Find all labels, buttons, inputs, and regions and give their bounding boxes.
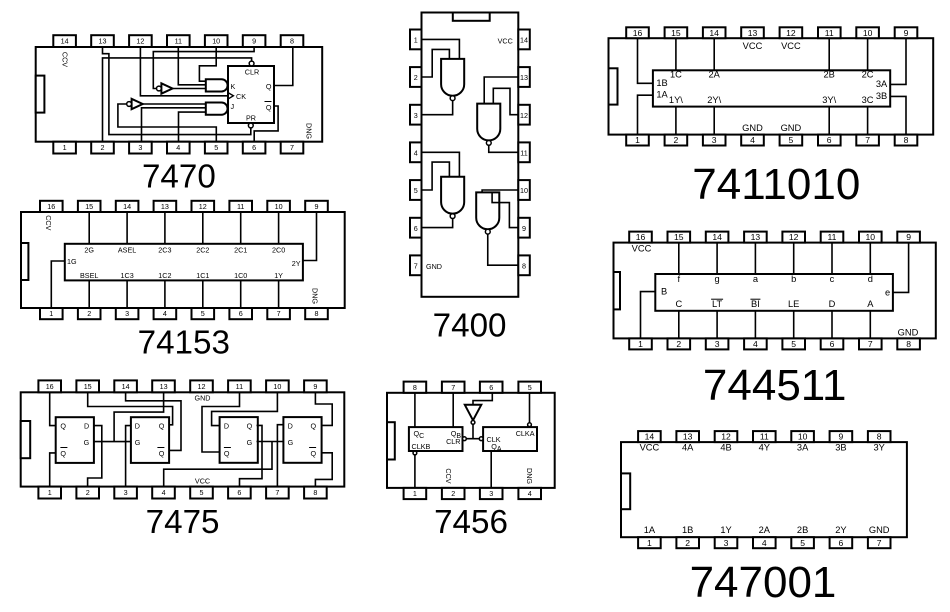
svg-text:8: 8 — [904, 135, 909, 145]
svg-text:11: 11 — [828, 232, 837, 242]
svg-text:7: 7 — [877, 538, 882, 548]
svg-text:8: 8 — [313, 488, 317, 497]
svg-text:VCC: VCC — [195, 477, 210, 486]
svg-text:CCV: CCV — [44, 215, 53, 230]
svg-text:2: 2 — [414, 73, 418, 82]
svg-text:1Y\: 1Y\ — [669, 95, 683, 105]
svg-text:5: 5 — [791, 339, 796, 349]
svg-text:4A: 4A — [682, 443, 694, 453]
svg-text:5: 5 — [214, 143, 218, 152]
svg-text:6: 6 — [839, 538, 844, 548]
svg-text:14: 14 — [61, 37, 69, 46]
svg-text:7: 7 — [865, 135, 870, 145]
svg-text:3: 3 — [125, 309, 129, 318]
svg-text:GND: GND — [781, 123, 802, 133]
svg-text:3Y: 3Y — [874, 443, 885, 453]
svg-text:747001: 747001 — [690, 558, 837, 607]
svg-text:14: 14 — [712, 232, 722, 242]
svg-text:5: 5 — [201, 309, 205, 318]
svg-text:16: 16 — [47, 202, 55, 211]
svg-text:12: 12 — [786, 28, 796, 38]
svg-text:Q: Q — [60, 422, 66, 431]
svg-text:9: 9 — [904, 28, 909, 38]
svg-text:14: 14 — [123, 202, 131, 211]
svg-text:GND: GND — [426, 262, 442, 271]
svg-text:3: 3 — [138, 143, 142, 152]
svg-text:10: 10 — [275, 202, 283, 211]
svg-text:1C3: 1C3 — [121, 271, 134, 280]
svg-text:b: b — [791, 274, 796, 284]
svg-text:D: D — [288, 422, 293, 431]
svg-text:Q: Q — [311, 422, 317, 431]
svg-text:11: 11 — [236, 382, 243, 391]
svg-text:3: 3 — [414, 111, 418, 120]
svg-text:Q: Q — [159, 449, 165, 458]
svg-text:CLKA: CLKA — [516, 429, 535, 438]
svg-text:1A: 1A — [656, 90, 668, 100]
svg-text:6: 6 — [830, 339, 835, 349]
svg-text:1: 1 — [413, 489, 417, 498]
svg-text:13: 13 — [683, 432, 693, 442]
svg-text:2: 2 — [87, 309, 91, 318]
svg-text:2: 2 — [451, 489, 455, 498]
svg-text:10: 10 — [212, 37, 220, 46]
svg-text:1G: 1G — [67, 257, 77, 266]
svg-text:2: 2 — [86, 488, 90, 497]
svg-text:2A: 2A — [709, 69, 721, 79]
svg-text:Q: Q — [247, 422, 253, 431]
svg-text:10: 10 — [273, 382, 281, 391]
svg-text:5: 5 — [414, 186, 418, 195]
svg-text:6: 6 — [489, 383, 493, 392]
svg-text:GND: GND — [195, 394, 211, 403]
svg-text:3Y\: 3Y\ — [822, 95, 836, 105]
svg-text:G: G — [84, 438, 90, 447]
svg-text:8: 8 — [315, 309, 319, 318]
svg-text:4B: 4B — [720, 443, 731, 453]
svg-text:9: 9 — [315, 202, 319, 211]
svg-text:B: B — [661, 287, 667, 297]
svg-text:G: G — [288, 438, 294, 447]
svg-text:2Y: 2Y — [835, 525, 846, 535]
svg-text:3: 3 — [124, 488, 128, 497]
svg-text:a: a — [753, 274, 759, 284]
svg-text:1C2: 1C2 — [158, 271, 171, 280]
svg-text:VCC: VCC — [743, 41, 763, 51]
svg-text:c: c — [830, 274, 835, 284]
svg-text:DNG: DNG — [310, 288, 319, 304]
svg-text:15: 15 — [85, 202, 93, 211]
svg-text:A: A — [867, 299, 874, 309]
svg-text:12: 12 — [789, 232, 799, 242]
svg-text:GND: GND — [869, 525, 890, 535]
svg-text:7: 7 — [868, 339, 873, 349]
svg-text:15: 15 — [84, 382, 92, 391]
svg-text:6: 6 — [414, 224, 418, 233]
svg-text:2: 2 — [674, 135, 679, 145]
svg-text:1: 1 — [414, 36, 418, 45]
svg-text:ASEL: ASEL — [118, 245, 136, 254]
svg-text:1: 1 — [48, 488, 52, 497]
svg-text:Q: Q — [311, 449, 317, 458]
svg-text:11: 11 — [520, 149, 527, 158]
svg-text:11: 11 — [760, 432, 769, 442]
svg-text:1: 1 — [647, 538, 652, 548]
svg-text:9: 9 — [906, 232, 911, 242]
svg-text:4: 4 — [762, 538, 767, 548]
svg-text:CLR: CLR — [245, 68, 259, 77]
svg-text:g: g — [715, 274, 720, 284]
svg-text:7411010: 7411010 — [692, 160, 860, 209]
svg-text:14: 14 — [122, 382, 130, 391]
svg-text:4Y: 4Y — [759, 443, 770, 453]
svg-text:5: 5 — [528, 383, 532, 392]
svg-text:Q: Q — [159, 422, 165, 431]
svg-text:2B: 2B — [797, 525, 808, 535]
svg-text:13: 13 — [99, 37, 107, 46]
svg-text:9: 9 — [839, 432, 844, 442]
svg-text:8: 8 — [906, 339, 911, 349]
svg-text:BI: BI — [751, 299, 760, 309]
svg-text:GND: GND — [898, 327, 919, 337]
svg-text:15: 15 — [671, 28, 681, 38]
svg-text:7: 7 — [451, 383, 455, 392]
svg-text:7475: 7475 — [146, 504, 220, 541]
svg-text:12: 12 — [721, 432, 731, 442]
svg-text:12: 12 — [198, 382, 206, 391]
svg-text:D: D — [224, 422, 229, 431]
svg-text:1Y: 1Y — [720, 525, 731, 535]
svg-text:LE: LE — [788, 299, 799, 309]
svg-text:1B: 1B — [656, 78, 667, 88]
svg-text:2: 2 — [101, 143, 105, 152]
svg-text:J: J — [231, 102, 235, 111]
svg-text:G: G — [135, 438, 141, 447]
svg-text:9: 9 — [313, 382, 317, 391]
svg-text:3: 3 — [712, 135, 717, 145]
svg-text:13: 13 — [751, 232, 761, 242]
svg-text:13: 13 — [520, 73, 528, 82]
svg-text:10: 10 — [866, 232, 876, 242]
svg-text:CK: CK — [236, 92, 246, 101]
svg-text:BSEL: BSEL — [80, 271, 98, 280]
svg-text:12: 12 — [520, 111, 528, 120]
svg-text:f: f — [678, 274, 681, 284]
svg-text:13: 13 — [161, 202, 169, 211]
svg-text:3: 3 — [715, 339, 720, 349]
svg-text:6: 6 — [252, 143, 256, 152]
svg-text:3: 3 — [489, 489, 493, 498]
svg-text:d: d — [868, 274, 873, 284]
svg-text:11: 11 — [825, 28, 834, 38]
svg-text:11: 11 — [237, 202, 244, 211]
svg-text:2Y: 2Y — [292, 259, 301, 268]
svg-text:1C1: 1C1 — [196, 271, 209, 280]
svg-text:1C: 1C — [670, 69, 682, 79]
svg-text:2G: 2G — [84, 245, 94, 254]
svg-text:1: 1 — [638, 339, 643, 349]
svg-text:9: 9 — [522, 224, 526, 233]
svg-text:6: 6 — [239, 309, 243, 318]
svg-text:4: 4 — [750, 135, 755, 145]
svg-text:8: 8 — [413, 383, 417, 392]
svg-text:D: D — [829, 299, 836, 309]
svg-text:16: 16 — [636, 232, 646, 242]
svg-text:16: 16 — [46, 382, 54, 391]
svg-text:2C2: 2C2 — [196, 245, 209, 254]
svg-text:1A: 1A — [644, 525, 656, 535]
svg-text:8: 8 — [522, 262, 526, 271]
svg-text:PR: PR — [246, 114, 256, 123]
svg-text:4: 4 — [162, 488, 166, 497]
svg-text:1: 1 — [49, 309, 53, 318]
svg-text:10: 10 — [863, 28, 873, 38]
svg-text:10: 10 — [798, 432, 808, 442]
svg-text:3: 3 — [724, 538, 729, 548]
svg-text:3A: 3A — [876, 79, 888, 89]
svg-text:11: 11 — [175, 37, 182, 46]
svg-text:Q: Q — [60, 449, 66, 458]
svg-text:1: 1 — [635, 135, 640, 145]
svg-text:CCV: CCV — [60, 52, 69, 67]
svg-text:14: 14 — [709, 28, 719, 38]
svg-text:2B: 2B — [824, 69, 835, 79]
svg-text:6: 6 — [237, 488, 241, 497]
svg-text:16: 16 — [633, 28, 643, 38]
svg-text:6: 6 — [827, 135, 832, 145]
svg-text:4: 4 — [176, 143, 180, 152]
svg-text:7456: 7456 — [434, 504, 508, 541]
svg-text:15: 15 — [674, 232, 684, 242]
svg-text:4: 4 — [163, 309, 167, 318]
svg-text:2: 2 — [685, 538, 690, 548]
svg-text:3B: 3B — [835, 443, 846, 453]
svg-text:Q: Q — [224, 449, 230, 458]
svg-text:CLKB: CLKB — [412, 442, 431, 451]
svg-text:2A: 2A — [759, 525, 771, 535]
svg-text:K: K — [231, 82, 236, 91]
svg-text:5: 5 — [800, 538, 805, 548]
svg-text:10: 10 — [520, 186, 528, 195]
svg-text:9: 9 — [252, 37, 256, 46]
svg-text:3B: 3B — [876, 91, 887, 101]
svg-text:14: 14 — [520, 36, 528, 45]
svg-text:1C0: 1C0 — [234, 271, 247, 280]
svg-text:7: 7 — [290, 143, 294, 152]
svg-text:12: 12 — [136, 37, 144, 46]
svg-text:8: 8 — [290, 37, 294, 46]
svg-text:2C0: 2C0 — [272, 245, 285, 254]
svg-text:GND: GND — [742, 123, 763, 133]
svg-text:2Y\: 2Y\ — [707, 95, 721, 105]
svg-text:G: G — [247, 438, 253, 447]
svg-text:7400: 7400 — [433, 308, 507, 345]
svg-text:1Y: 1Y — [274, 271, 283, 280]
svg-text:12: 12 — [199, 202, 207, 211]
svg-text:2: 2 — [676, 339, 681, 349]
svg-text:13: 13 — [160, 382, 168, 391]
svg-text:D: D — [84, 422, 89, 431]
svg-text:7: 7 — [275, 488, 279, 497]
svg-text:7470: 7470 — [142, 158, 216, 195]
svg-text:Q: Q — [266, 82, 272, 91]
svg-text:LT: LT — [712, 299, 722, 309]
svg-text:7: 7 — [414, 262, 418, 271]
svg-text:1: 1 — [63, 143, 67, 152]
svg-text:13: 13 — [748, 28, 758, 38]
svg-text:e: e — [885, 287, 890, 297]
svg-text:4: 4 — [753, 339, 758, 349]
svg-text:3A: 3A — [797, 443, 809, 453]
svg-text:1B: 1B — [682, 525, 693, 535]
svg-text:5: 5 — [200, 488, 204, 497]
svg-text:VCC: VCC — [632, 244, 652, 254]
svg-text:8: 8 — [877, 432, 882, 442]
svg-text:14: 14 — [645, 432, 655, 442]
svg-text:744511: 744511 — [703, 361, 847, 410]
svg-text:2C3: 2C3 — [158, 245, 171, 254]
svg-text:4: 4 — [528, 489, 532, 498]
svg-text:Q: Q — [266, 103, 272, 112]
svg-text:VCC: VCC — [498, 37, 513, 46]
svg-text:3C: 3C — [862, 95, 874, 105]
svg-text:CCV: CCV — [444, 468, 453, 483]
svg-text:7: 7 — [277, 309, 281, 318]
svg-text:DNG: DNG — [525, 468, 534, 484]
svg-text:VCC: VCC — [781, 41, 801, 51]
svg-text:D: D — [135, 422, 140, 431]
svg-text:2C1: 2C1 — [234, 245, 247, 254]
svg-text:DNG: DNG — [304, 123, 313, 139]
svg-text:CLR: CLR — [446, 437, 460, 446]
svg-text:C: C — [675, 299, 682, 309]
svg-text:VCC: VCC — [640, 443, 660, 453]
svg-text:5: 5 — [789, 135, 794, 145]
svg-text:4: 4 — [414, 149, 418, 158]
svg-text:74153: 74153 — [138, 325, 230, 362]
svg-text:2C: 2C — [862, 69, 874, 79]
